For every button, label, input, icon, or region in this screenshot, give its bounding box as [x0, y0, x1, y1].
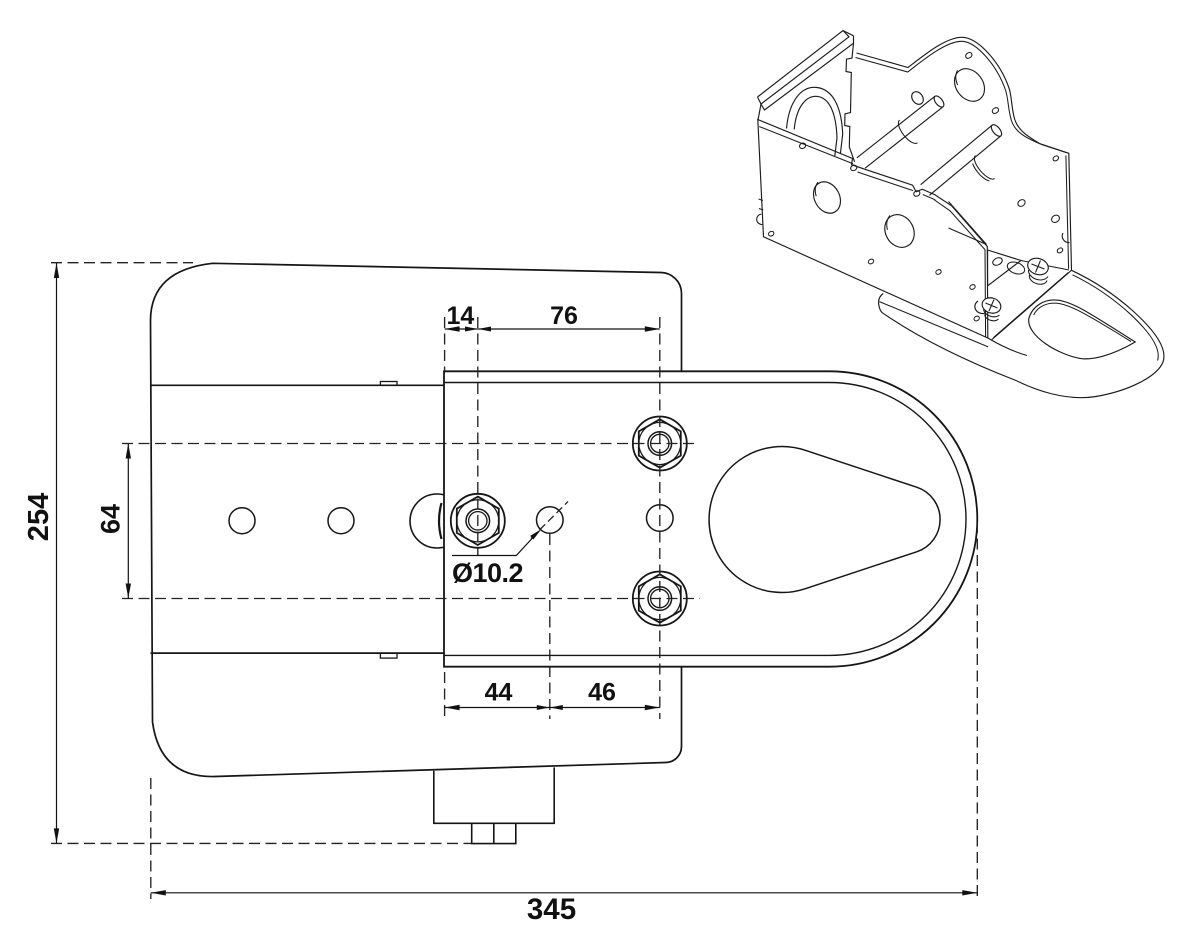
- svg-text:Ø10.2: Ø10.2: [452, 558, 523, 588]
- svg-text:76: 76: [550, 302, 578, 330]
- svg-text:254: 254: [23, 493, 55, 541]
- svg-text:46: 46: [588, 679, 616, 707]
- svg-text:345: 345: [527, 893, 576, 926]
- svg-text:14: 14: [446, 302, 474, 330]
- svg-text:64: 64: [96, 504, 126, 534]
- svg-text:44: 44: [485, 679, 513, 707]
